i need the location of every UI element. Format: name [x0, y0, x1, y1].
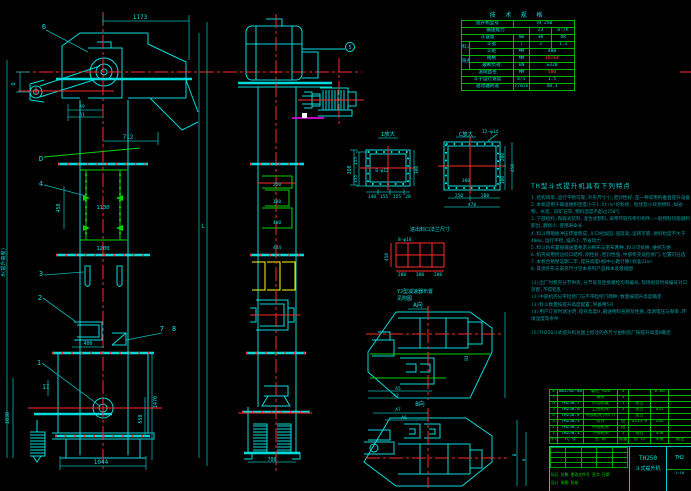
dim-1200: 1200 [96, 246, 109, 252]
dim-444: 444 [273, 245, 281, 251]
dim-q: Q [11, 82, 17, 85]
detail-c-hole: 12-φ14 [482, 129, 499, 135]
notes-block: TH型斗式提升机具有下列特点 1.结构简单,运行平稳可靠,外形尺寸小,密封性好,… [531, 180, 690, 337]
note-line: (3)料斗数量按提升高度配置,另备用5只 [531, 302, 690, 309]
dim-250: 250 [273, 182, 281, 188]
dim-l-label: L [201, 223, 205, 230]
spec-cell: ≥320 [530, 63, 575, 70]
bom-table: 8GB5782-86螺栓 M2040.067链条16TH250.7传动装置1组合… [549, 389, 691, 444]
note-line: (1)出厂时机壳分节供货,分节处及连接螺栓均有编号,现场组装时按编号对口装配,不… [531, 280, 690, 294]
bom-cell: 中部机壳(带门) [584, 414, 618, 420]
drawing-code: TH2 [667, 455, 691, 461]
dim-712: 712 [123, 134, 134, 141]
drawing-scale: 1:10 [667, 469, 691, 475]
dim-200c: 200 [481, 193, 489, 199]
dim-155a: 155 [353, 157, 359, 165]
spec-table: 提升机型号TH 250 输送能力23m³/h 斗容量mm3048 料斗斗宽l31… [461, 20, 575, 91]
bom-cell: 名 称 [584, 438, 618, 444]
note-line: 4.料斗用钢板冲压焊接而成,斗口经加固,强度高,运转可靠,进料粒度不大于40mm… [531, 231, 690, 245]
dim-1470: 1470 [153, 396, 159, 408]
spec-cell: 滚筒直径 [462, 70, 514, 77]
note-line: 8.其他外形与安装尺寸见本系列产品样本及基础图 [531, 266, 690, 273]
view-a-label: A向 [413, 301, 423, 309]
dim-200r: 200 [500, 153, 506, 161]
dim-a3: A3 [393, 393, 399, 399]
note-line: (2)中部机壳分带检修门与不带检修门两种,数量按提升高度确定 [531, 294, 690, 301]
dim-a1: A1 [79, 112, 85, 118]
note-line: 5.料斗的布置按输送量要求分稀布与密布两种,料斗可拆换,维修方便 [531, 245, 690, 252]
bom-cell: 备注 [669, 438, 691, 444]
note-line [531, 273, 690, 280]
grid-200a: 200 [398, 272, 406, 278]
bom-cell: 代 号 [558, 438, 584, 444]
spec-cell: 输送能力 [462, 28, 530, 35]
flange-caption: 进出料口法兰尺寸 [410, 226, 450, 233]
spec-cell: TH 250 [514, 21, 575, 28]
dim-b: B [512, 453, 518, 456]
note-line [531, 323, 690, 330]
dim-a9: A9 [79, 104, 85, 110]
top-view-b: B向 A7 A6 B a [364, 400, 527, 488]
spec-cell: m³/h [552, 28, 575, 35]
label-d: D [39, 155, 43, 163]
balloon-7: 7 [160, 325, 164, 333]
grid-200b: 200 [434, 272, 442, 278]
top-view-a: A向 A5 A3 B1 [366, 301, 505, 400]
spec-cell: 链条 [462, 56, 470, 70]
spec-cell: MM [514, 56, 530, 63]
balloon-6: 6 [42, 23, 46, 31]
side-view-elevation: 5 360 250 180 400 444 700 [238, 14, 364, 472]
dim-155b: 155 [353, 175, 359, 183]
spec-cell: mm [514, 35, 530, 42]
dim-450: 450 [56, 203, 62, 212]
note-line: (4)用户订货时请注明:提升高度H,输送物料名称及性质,电源电压与频率,环境温度… [531, 309, 690, 323]
spec-cell: l [514, 42, 530, 49]
grid-450: 450 [384, 253, 390, 261]
spec-cell: 500 [530, 70, 575, 77]
dim-250c: 250 [455, 193, 463, 199]
label-section-ii: II [42, 384, 50, 391]
detail-i-label: I放大 [381, 130, 396, 138]
spec-cell: MM [514, 49, 530, 56]
dim-100r: 100 [500, 176, 506, 184]
grid-hole-label: 8-φ18 [398, 237, 412, 243]
spec-cell: 斗子运行速度 [462, 77, 514, 84]
spec-cell: 驱动轴转速 [462, 84, 514, 91]
spec-cell: 23 [530, 28, 552, 35]
notes-heading: TH型斗式提升机具有下列特点 [531, 180, 690, 190]
spec-cell: 1.3 [552, 42, 575, 49]
cad-drawing-canvas: 1173 712 A9 A1 Q 450 1130 1200 400 1030 … [0, 0, 691, 491]
spec-cell: 30 [530, 35, 552, 42]
flange-detail-i: I放大 8-φ12 155 155 300 140 155 155 20 [353, 130, 420, 200]
bom-cell: 序号 [550, 438, 558, 444]
title-block-right: TH2 1:10 [666, 447, 691, 491]
spec-cell: 斗容量 [462, 35, 514, 42]
bom-cell: 单重 [651, 438, 669, 444]
reducer-note-2: 见附图 [397, 295, 412, 302]
bom-cell: 材 料 [629, 438, 651, 444]
balloon-3: 3 [39, 270, 43, 278]
dim-155d: 155 [393, 194, 401, 200]
dim-550: 550 [138, 414, 144, 423]
spec-cell: 破断负荷 [470, 63, 514, 70]
spec-cell: r/min [514, 84, 530, 91]
flange-detail-c: C放大 12-φ14 300 250 200 470 200 100 450 [438, 129, 516, 208]
dim-300c: 300 [462, 178, 470, 184]
dim-155c: 155 [380, 194, 388, 200]
white-marker [302, 113, 307, 118]
balloon-2: 2 [38, 294, 42, 302]
spec-cell: kN [514, 63, 530, 70]
drawing-model: TH250 [630, 455, 666, 462]
dim-470: 470 [468, 202, 476, 208]
dim-a5: A5 [395, 386, 401, 392]
spec-cell: 18×64 [530, 56, 575, 63]
dim-b1: B1 [464, 355, 470, 361]
dim-1030: 1030 [5, 412, 11, 424]
balloon-8: 8 [172, 325, 176, 333]
spec-table-title: 技 术 规 格 [461, 10, 574, 19]
detail-c-label: C放大 [459, 130, 474, 138]
note-line: 6.机壳采用折边咬口结构,刚性好,密封性强,中部机壳设检修门,位置可任选 [531, 252, 690, 259]
drawing-name: 斗式提升机 [630, 465, 666, 472]
balloon-5: 5 [348, 45, 351, 51]
spec-cell: m/s [514, 77, 530, 84]
note-line: 3.下部给料,掏取式装料,混合式卸料,采用环链作牵引构件,一般物料均能顺利卸出,… [531, 216, 690, 230]
spec-cell: 料斗 [462, 42, 470, 56]
dim-700: 700 [267, 457, 276, 463]
spec-cell: 48.3 [530, 84, 575, 91]
note-line: (5)TH250斗式提升机总图上标注的各尺寸由制造厂按提升高度H确定 [531, 330, 690, 337]
dim-a6: A6 [401, 415, 407, 421]
dim-360: 360 [347, 165, 353, 174]
reducer-note-1: YJ型减速器布置 [397, 288, 433, 295]
spec-cell: 规格 [470, 56, 514, 63]
notes-lines: 1.结构简单,运行平稳可靠,外形尺寸小,密封性好,是一种常用的垂直提升设备2.本… [531, 195, 690, 337]
dim-1173: 1173 [133, 14, 148, 21]
bom-cell: 数量 [618, 438, 629, 444]
title-block: 标记 处数 更改文件号 签字 日期 设计 制图 校核 TH250 斗式提升机 T… [549, 446, 691, 491]
spec-cell: MM [514, 70, 530, 77]
spec-cell: 480 [530, 49, 575, 56]
bom-cell: GB5782-86 [558, 390, 584, 396]
bom-cell: Q235-A [629, 420, 651, 426]
dim-a7: A7 [395, 407, 401, 413]
dim-180: 180 [273, 199, 281, 205]
spec-cell: 提升机型号 [462, 21, 514, 28]
spec-cell: 斗距 [470, 49, 514, 56]
dim-300i: 300 [414, 166, 420, 174]
note-line: 7.本机合格保证期二年,提升高度H按中心距计算(标准31m) [531, 259, 690, 266]
dim-400: 400 [83, 341, 92, 347]
balloon-1: 1 [37, 359, 41, 367]
dim-h-label: H(提升高度) [0, 247, 7, 276]
spec-cell: 斗宽 [470, 42, 514, 49]
balloon-4: 4 [39, 180, 43, 188]
revision-labels: 标记 处数 更改文件号 签字 日期 [551, 472, 629, 478]
dim-a-small: a [522, 458, 527, 461]
dim-450r: 450 [510, 164, 516, 172]
grid-300: 300 [416, 272, 424, 278]
view-b-label: B向 [415, 400, 425, 408]
role-labels: 设计 制图 校核 [551, 480, 629, 486]
dim-400s: 400 [273, 220, 281, 226]
note-line: 2.本机适用于输送堆积密度小于1.5t/m³的粉状、粒状及小块状物料,如谷物、水… [531, 202, 690, 216]
spec-cell: 48 [552, 35, 575, 42]
spec-cell: 3 [530, 42, 552, 49]
note-line: 1.结构简单,运行平稳可靠,外形尺寸小,密封性好,是一种常用的垂直提升设备 [531, 195, 690, 202]
anchor-bolt-grid: 进出料口法兰尺寸 8-φ18 450 200 300 200 YJ型减速器布置 … [384, 226, 450, 302]
dim-1130: 1130 [96, 205, 109, 211]
title-block-center: TH250 斗式提升机 [629, 447, 666, 491]
revision-grid [550, 447, 628, 468]
dim-140: 140 [368, 194, 376, 200]
dim-20: 20 [405, 194, 411, 200]
spec-cell: 1.5 [530, 77, 575, 84]
detail-i-hole: 8-φ12 [375, 168, 389, 174]
dim-1044: 1044 [94, 459, 109, 466]
